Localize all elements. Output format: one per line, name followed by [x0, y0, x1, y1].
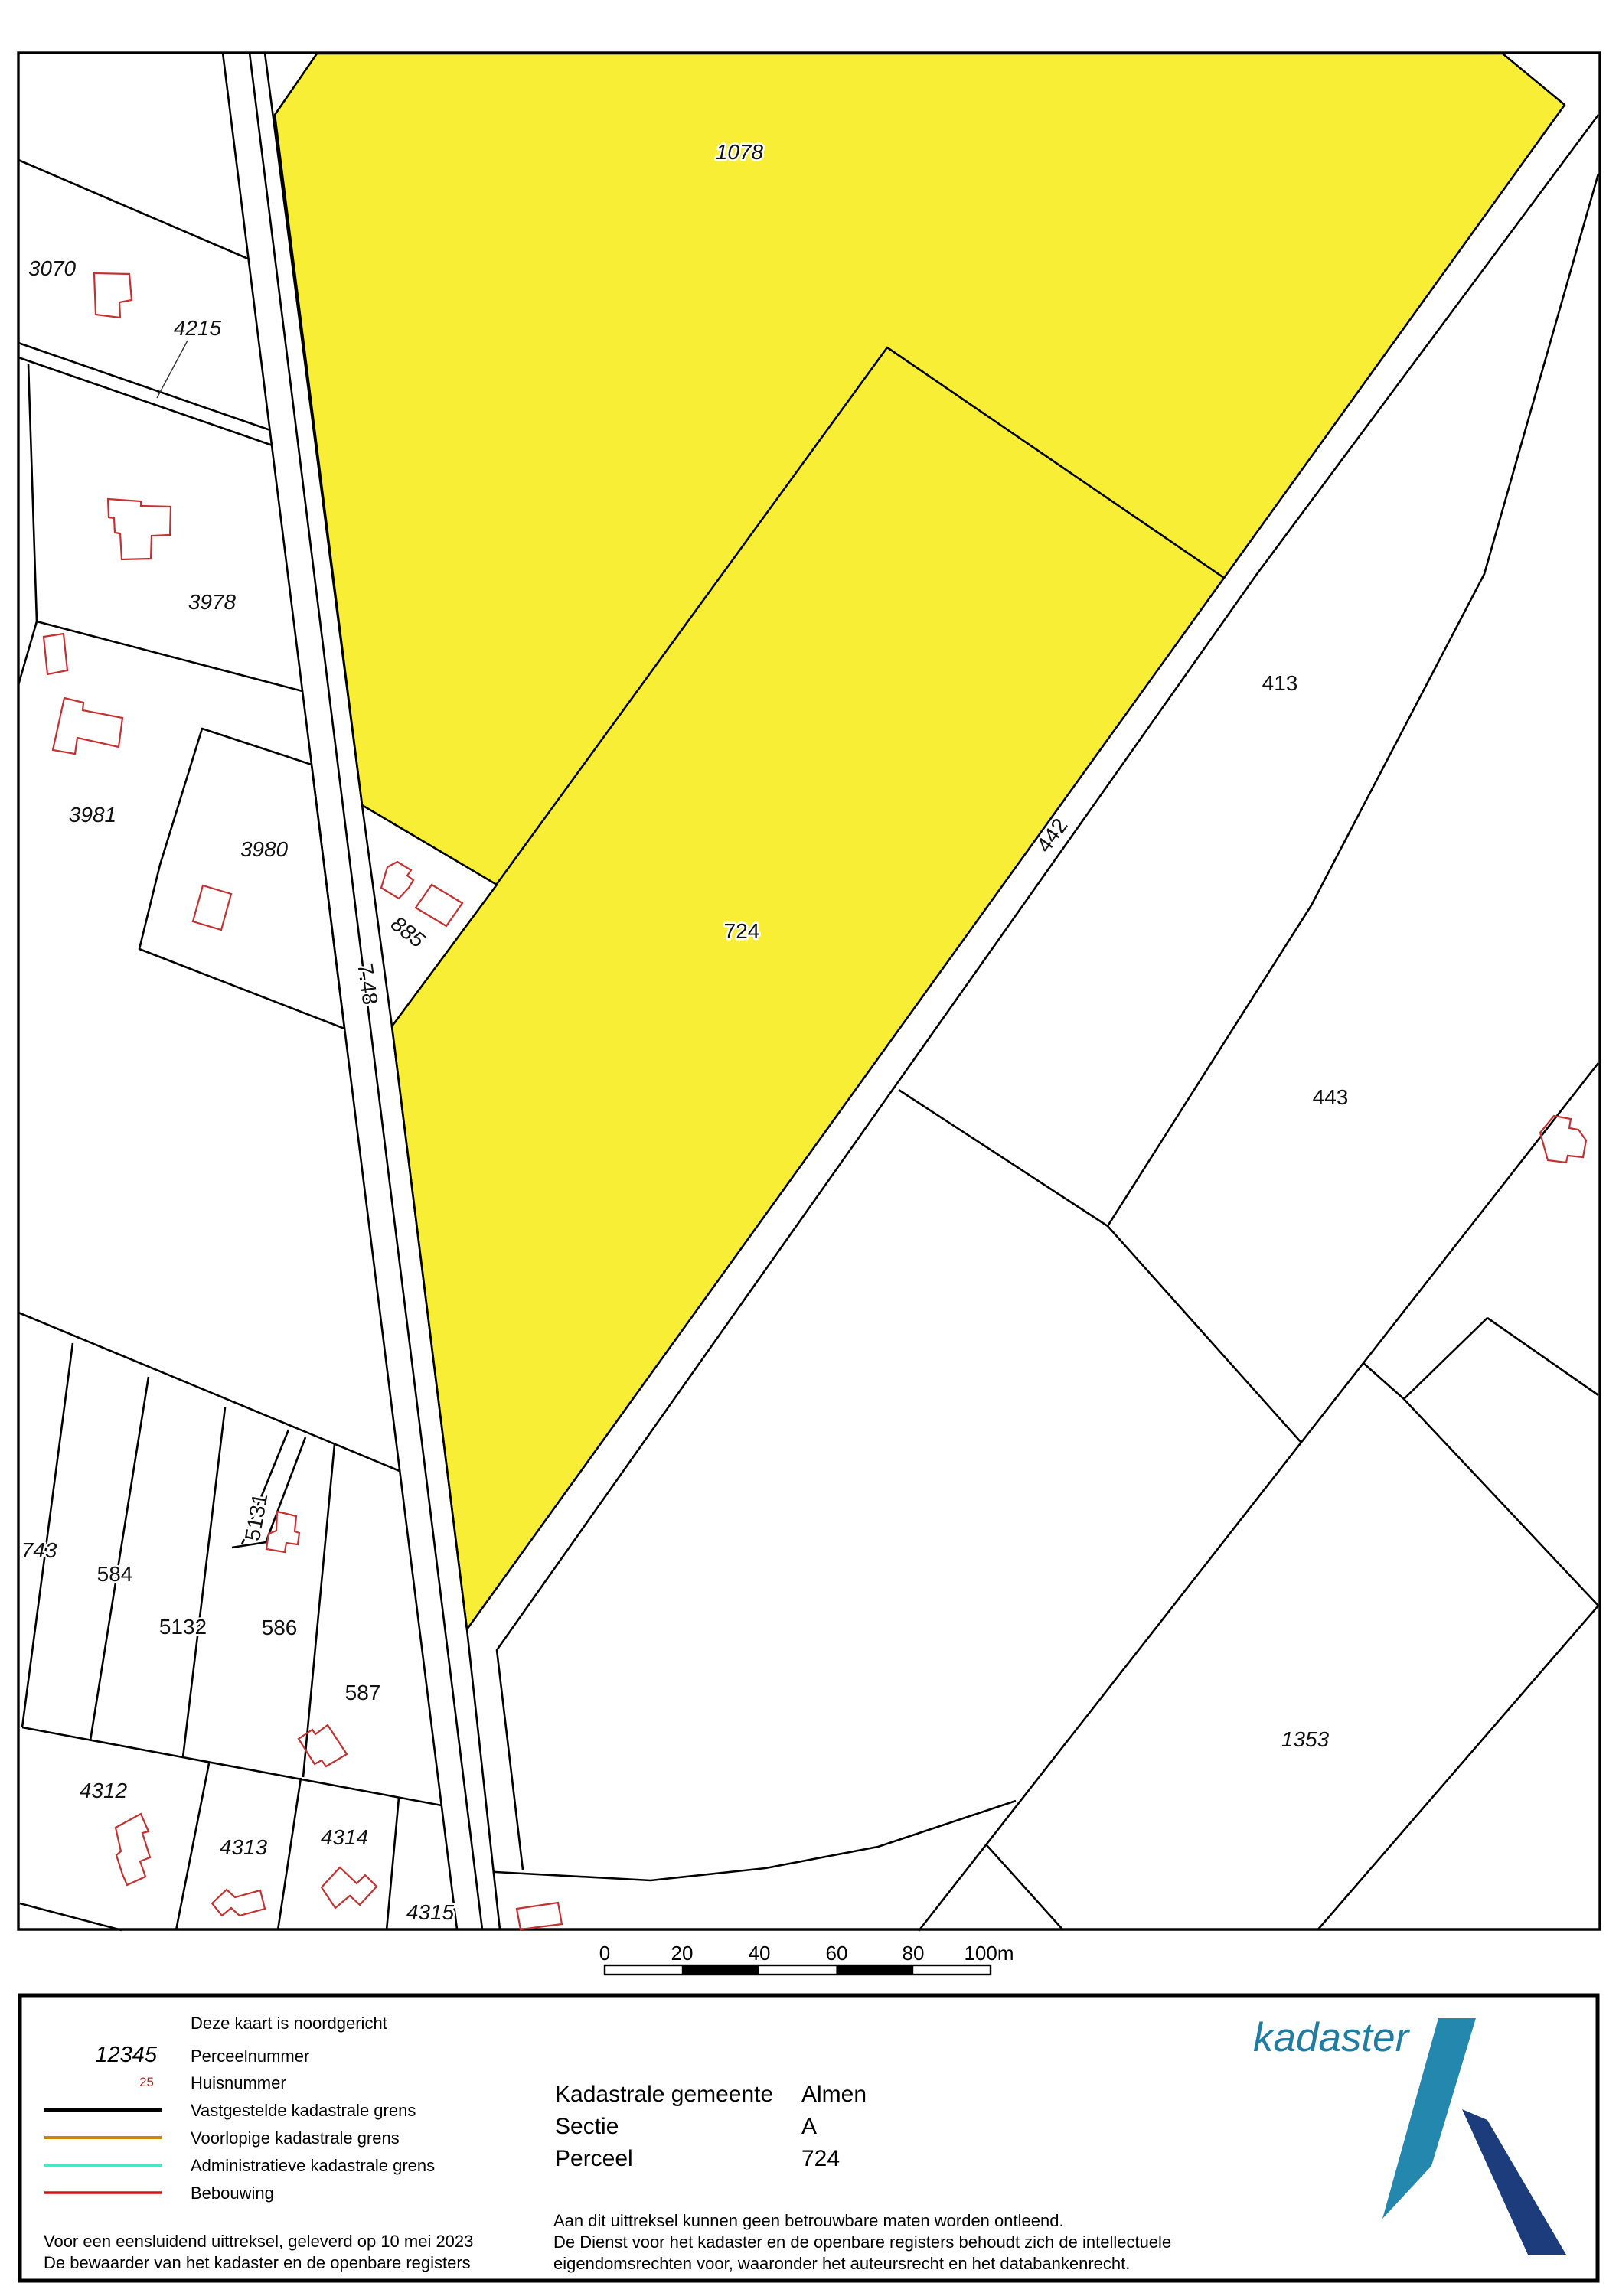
svg-text:3070: 3070	[28, 256, 77, 280]
svg-text:Almen: Almen	[801, 2082, 867, 2107]
svg-text:De bewaarder van het kadaster: De bewaarder van het kadaster en de open…	[44, 2253, 471, 2272]
svg-text:3980: 3980	[240, 837, 289, 861]
svg-text:Huisnummer: Huisnummer	[191, 2073, 286, 2092]
svg-text:eigendomsrechten voor, waarond: eigendomsrechten voor, waaronder het aut…	[553, 2254, 1130, 2273]
svg-text:Sectie: Sectie	[555, 2114, 619, 2139]
svg-text:3981: 3981	[69, 803, 116, 827]
svg-text:Voor een eensluidend uittrekse: Voor een eensluidend uittreksel, gelever…	[44, 2232, 473, 2251]
svg-text:443: 443	[1313, 1085, 1349, 1109]
svg-text:Voorlopige kadastrale grens: Voorlopige kadastrale grens	[191, 2128, 400, 2148]
svg-text:4315: 4315	[406, 1900, 455, 1924]
svg-text:1078: 1078	[716, 140, 764, 164]
svg-text:Perceelnummer: Perceelnummer	[191, 2047, 309, 2066]
svg-text:4215: 4215	[174, 316, 222, 340]
svg-text:743: 743	[21, 1538, 57, 1562]
svg-text:Aan dit uittreksel kunnen geen: Aan dit uittreksel kunnen geen betrouwba…	[553, 2211, 1064, 2230]
svg-text:413: 413	[1262, 671, 1298, 695]
svg-text:kadaster: kadaster	[1253, 2015, 1411, 2060]
svg-text:De Dienst voor het kadaster en: De Dienst voor het kadaster en de openba…	[553, 2232, 1171, 2252]
svg-text:5132: 5132	[159, 1615, 207, 1639]
svg-text:80: 80	[903, 1942, 925, 1965]
svg-text:3978: 3978	[188, 590, 237, 614]
svg-text:4314: 4314	[321, 1825, 368, 1849]
svg-text:Vastgestelde kadastrale grens: Vastgestelde kadastrale grens	[191, 2101, 416, 2120]
svg-text:1353: 1353	[1281, 1727, 1330, 1751]
svg-text:4313: 4313	[220, 1835, 268, 1859]
svg-text:25: 25	[139, 2075, 154, 2089]
svg-text:12345: 12345	[95, 2043, 158, 2067]
svg-text:0: 0	[599, 1942, 610, 1965]
svg-text:60: 60	[826, 1942, 848, 1965]
svg-text:Bebouwing: Bebouwing	[191, 2183, 274, 2203]
svg-text:724: 724	[801, 2146, 840, 2171]
svg-text:40: 40	[749, 1942, 771, 1965]
svg-text:Administratieve kadastrale gre: Administratieve kadastrale grens	[191, 2156, 435, 2175]
svg-text:586: 586	[262, 1616, 298, 1639]
svg-text:Perceel: Perceel	[555, 2146, 633, 2171]
svg-text:20: 20	[671, 1942, 694, 1965]
svg-text:Deze kaart is noordgericht: Deze kaart is noordgericht	[191, 2014, 387, 2033]
svg-text:584: 584	[97, 1562, 133, 1586]
svg-text:724: 724	[724, 919, 760, 943]
svg-text:4312: 4312	[80, 1779, 128, 1802]
svg-text:587: 587	[345, 1681, 381, 1704]
svg-text:A: A	[801, 2114, 817, 2139]
svg-text:Kadastrale gemeente: Kadastrale gemeente	[555, 2082, 773, 2107]
svg-text:100m: 100m	[964, 1942, 1014, 1965]
